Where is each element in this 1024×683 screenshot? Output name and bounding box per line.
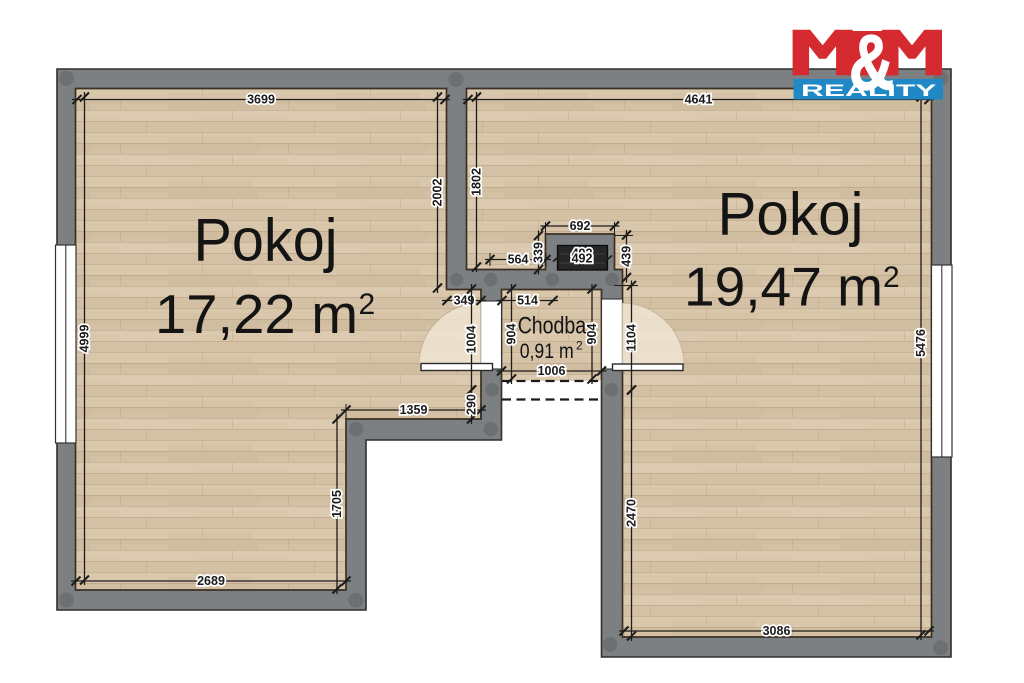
svg-text:692: 692 <box>570 219 591 233</box>
svg-text:17,22 m: 17,22 m <box>155 283 358 345</box>
svg-text:0,91 m: 0,91 m <box>520 340 574 363</box>
svg-text:2: 2 <box>576 339 583 353</box>
svg-text:2002: 2002 <box>431 179 445 207</box>
svg-text:290: 290 <box>465 394 479 415</box>
svg-text:492: 492 <box>572 252 593 266</box>
svg-text:2: 2 <box>359 288 376 321</box>
svg-text:4999: 4999 <box>78 325 92 353</box>
svg-text:1004: 1004 <box>465 326 479 354</box>
svg-text:904: 904 <box>585 324 599 345</box>
svg-text:1104: 1104 <box>625 324 639 351</box>
svg-text:339: 339 <box>532 242 546 263</box>
svg-text:Pokoj: Pokoj <box>194 207 338 274</box>
svg-text:1705: 1705 <box>330 490 344 518</box>
svg-text:2689: 2689 <box>197 574 225 588</box>
svg-text:904: 904 <box>505 324 519 345</box>
svg-text:1359: 1359 <box>400 403 428 417</box>
svg-text:564: 564 <box>508 253 529 267</box>
svg-text:439: 439 <box>620 246 634 267</box>
svg-text:2470: 2470 <box>625 499 639 527</box>
svg-text:1006: 1006 <box>538 364 566 378</box>
svg-text:19,47 m: 19,47 m <box>684 256 883 318</box>
svg-text:Pokoj: Pokoj <box>718 181 864 248</box>
svg-text:Chodba: Chodba <box>518 312 587 339</box>
svg-text:&: & <box>849 18 894 106</box>
svg-text:3699: 3699 <box>247 93 275 107</box>
svg-text:514: 514 <box>517 294 538 308</box>
svg-text:3086: 3086 <box>763 624 791 638</box>
svg-text:5476: 5476 <box>914 329 928 357</box>
svg-text:1802: 1802 <box>470 168 484 196</box>
svg-text:4641: 4641 <box>685 93 713 107</box>
svg-text:2: 2 <box>883 261 900 294</box>
